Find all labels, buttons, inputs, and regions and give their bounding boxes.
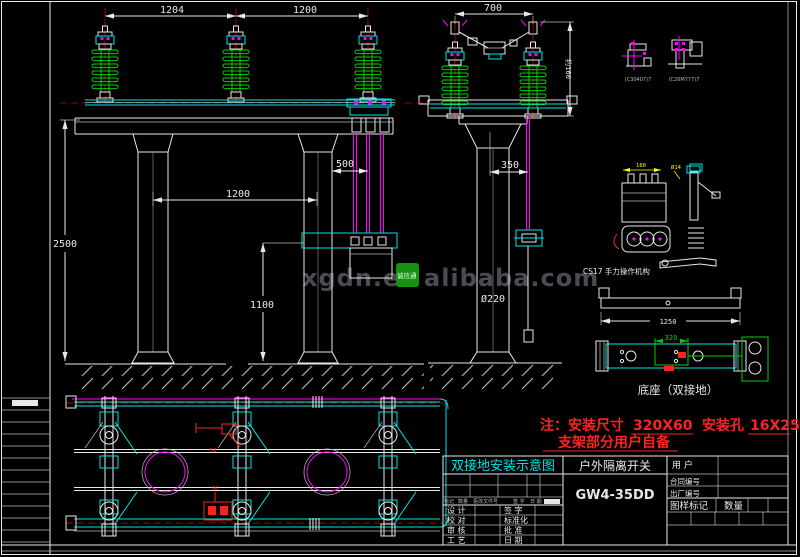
dim-1250: 1250: [660, 318, 677, 326]
rev-sign-label: 签 字: [513, 498, 525, 505]
dim-1200-top: 1200: [293, 5, 317, 16]
mark-label: 图样标记: [670, 500, 709, 512]
side-grounding-rod: [514, 116, 544, 342]
customer-label: 用 户: [672, 459, 693, 471]
dim-mech-160: 160: [636, 163, 646, 169]
watermark-badge-text: 诚信通: [397, 271, 417, 280]
dim-700: 700: [484, 3, 502, 14]
grounding-rods: [302, 134, 397, 278]
dim-320: 320: [665, 334, 678, 342]
mechanism-label: CS17 手力操作机构: [583, 266, 650, 276]
revision-strip: [2, 398, 50, 542]
rev-date-label: 日 期: [530, 499, 542, 505]
side-dimensions: 700 约160 350 Ø220: [455, 3, 574, 305]
rev-mark-label: 标记: [444, 498, 454, 505]
note-dim1: 320X60: [633, 418, 693, 434]
terminal-detail-left: (C30407)7: [622, 40, 651, 83]
rev-qty-label: 数量: [458, 498, 468, 505]
sign-row-check: 校 对: [447, 515, 466, 525]
dim-1200-mid: 1200: [226, 189, 250, 200]
cad-sheet: xgdn.en 诚信通 alibaba.com: [0, 0, 800, 557]
cad-drawing: xgdn.en 诚信通 alibaba.com: [0, 0, 800, 557]
detail-tag-left: (C30407)7: [625, 77, 651, 83]
title-block: 双接地安装示意图 户外隔离开关 GW4-35DD 用 户 合同编号 出厂编号 图…: [443, 456, 788, 545]
base-plate-detail: 320 底座（双接地）: [596, 334, 768, 397]
note-line2: 支架部分用户自备: [557, 434, 671, 451]
sign-row-design: 设 计: [447, 505, 466, 515]
detail-tag-right: (C26M777)7: [669, 77, 700, 83]
product-name: 户外隔离开关: [579, 458, 651, 473]
front-view: 1204 1200 2500 1200 1100 500: [53, 5, 424, 391]
flexible-braid-icon: [310, 396, 322, 530]
contract-label: 合同编号: [670, 476, 700, 486]
dim-column-diameter: Ø220: [481, 293, 505, 305]
watermark: xgdn.en 诚信通 alibaba.com: [302, 263, 599, 292]
dim-mech-d14: Ø14: [671, 164, 682, 171]
dim-160: 约160: [564, 59, 573, 79]
sign-row-craft: 工 艺: [447, 536, 466, 545]
bracket-detail: 1250: [599, 288, 741, 326]
rev-doc-label: 更改文件号: [473, 498, 498, 505]
watermark-suffix: alibaba.com: [424, 264, 599, 292]
dim-500: 500: [336, 159, 354, 170]
terminal-detail-right: (C26M777)7: [668, 36, 702, 83]
note-dim2: 16X25: [750, 418, 800, 434]
plan-view: 50 50: [66, 396, 448, 536]
plan-tag-top: 50: [210, 448, 217, 454]
dim-350: 350: [501, 160, 519, 171]
drawing-title: 双接地安装示意图: [451, 458, 555, 474]
model-number: GW4-35DD: [575, 488, 654, 503]
front-dimensions: 1204 1200 2500 1200 1100 500: [53, 5, 368, 361]
side-view: 700 约160 350 Ø220: [405, 3, 577, 389]
dim-1204: 1204: [160, 5, 184, 16]
base-plate-label: 底座（双接地）: [638, 383, 719, 397]
dim-2500: 2500: [53, 239, 77, 250]
dim-1100: 1100: [250, 300, 274, 311]
sign-row-audit: 审 核: [447, 525, 466, 535]
sign-row-check-right: 标准化: [504, 515, 528, 525]
installation-note: 注：安装尺寸 320X60 安装孔 16X25 支架部分用户自备: [540, 417, 800, 451]
note-prefix: 注：安装尺寸: [540, 417, 624, 434]
operating-mechanism-detail: 160 Ø14 CS17 手力操作机构: [583, 163, 720, 276]
note-mid: 安装孔: [702, 417, 744, 434]
sign-row-craft-right: 日 期: [504, 536, 523, 545]
factory-label: 出厂编号: [670, 488, 700, 498]
sign-row-audit-right: 批 准: [504, 525, 523, 535]
sign-row-design-right: 签 字: [504, 505, 523, 515]
qty-label: 数量: [724, 500, 744, 512]
plan-tag-bottom: 50: [212, 486, 219, 492]
